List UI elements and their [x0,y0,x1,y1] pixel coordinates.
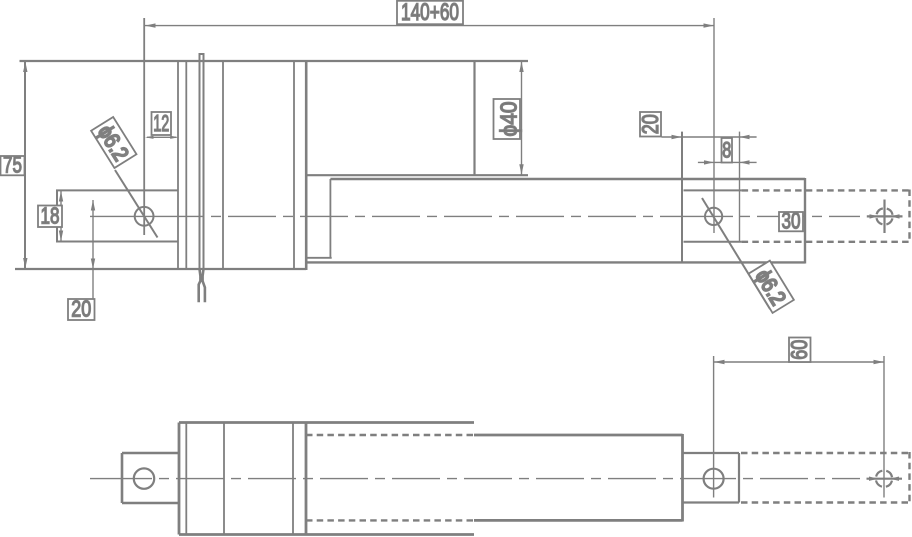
svg-text:75: 75 [3,151,22,177]
svg-text:20: 20 [71,296,91,322]
svg-text:18: 18 [41,203,60,229]
svg-text:8: 8 [722,138,731,163]
svg-text:ϕ40: ϕ40 [495,102,521,137]
svg-text:60: 60 [786,340,812,360]
svg-text:140+60: 140+60 [401,0,459,26]
svg-text:20: 20 [637,114,663,134]
svg-text:12: 12 [153,110,169,136]
svg-text:30: 30 [782,207,801,233]
